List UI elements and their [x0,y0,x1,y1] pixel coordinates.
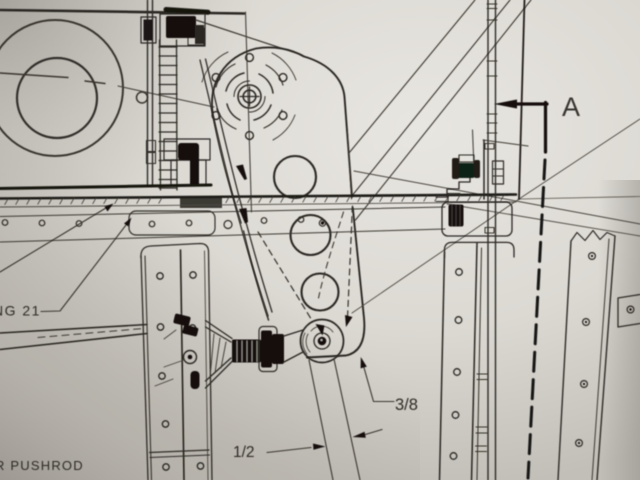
svg-text:NG 21: NG 21 [0,303,41,319]
svg-text:1/2: 1/2 [233,444,255,461]
svg-text:A: A [562,92,580,122]
svg-text:R PUSHROD: R PUSHROD [0,458,84,473]
svg-text:3/8: 3/8 [395,396,418,414]
